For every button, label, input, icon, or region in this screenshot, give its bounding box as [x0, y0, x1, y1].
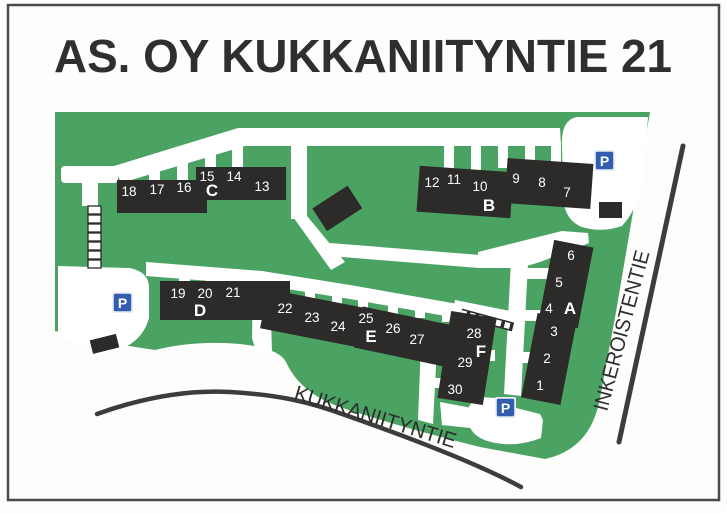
unit-number: 21	[225, 285, 240, 300]
unit-number: 27	[409, 332, 424, 347]
unit-number: 11	[447, 172, 461, 187]
unit-number: 6	[567, 248, 575, 263]
unit-number: 4	[545, 301, 553, 316]
unit-number: 8	[538, 175, 546, 190]
unit-number: 30	[447, 382, 462, 397]
building-b-label: B	[483, 196, 495, 215]
unit-number: 1	[536, 378, 544, 393]
page-title: AS. OY KUKKANIITYNTIE 21	[54, 30, 672, 82]
unit-number: 9	[512, 171, 520, 186]
unit-number: 24	[330, 319, 346, 334]
unit-number: 16	[176, 180, 191, 195]
unit-number: 28	[466, 326, 481, 341]
unit-number: 25	[358, 311, 373, 326]
building-a-label: A	[564, 299, 576, 318]
building-d-label: D	[194, 301, 206, 320]
unit-number: 23	[304, 310, 319, 325]
unit-number: 5	[555, 275, 563, 290]
unit-number: 29	[457, 355, 472, 370]
site-map: AS. OY KUKKANIITYNTIE 21	[0, 0, 727, 513]
unit-number: 22	[277, 301, 292, 316]
unit-number: 18	[121, 184, 136, 199]
unit-number: 20	[197, 286, 212, 301]
unit-number: 3	[550, 324, 558, 339]
building-b-wing-west	[417, 166, 514, 218]
building-e-label: E	[365, 327, 376, 346]
unit-number: 17	[149, 182, 164, 197]
parking-sign-south: P	[495, 397, 516, 418]
steps-west	[88, 206, 101, 268]
parking-sign-label: P	[600, 153, 609, 169]
parking-sign-west: P	[112, 292, 133, 313]
building-f-label: F	[476, 342, 486, 361]
parking-sign-label: P	[118, 295, 127, 311]
unit-number: 2	[543, 351, 551, 366]
parking-sign-label: P	[501, 400, 510, 416]
outbuilding-east	[599, 202, 622, 218]
unit-number: 7	[563, 185, 571, 200]
building-c-label: C	[206, 181, 218, 200]
unit-number: 12	[424, 175, 439, 190]
site-plan-page: AS. OY KUKKANIITYNTIE 21	[0, 0, 727, 513]
unit-number: 14	[226, 169, 242, 184]
parking-sign-northeast: P	[594, 150, 615, 171]
unit-number: 26	[385, 321, 400, 336]
unit-number: 19	[170, 286, 185, 301]
unit-number: 13	[254, 179, 269, 194]
unit-number: 10	[472, 179, 487, 194]
